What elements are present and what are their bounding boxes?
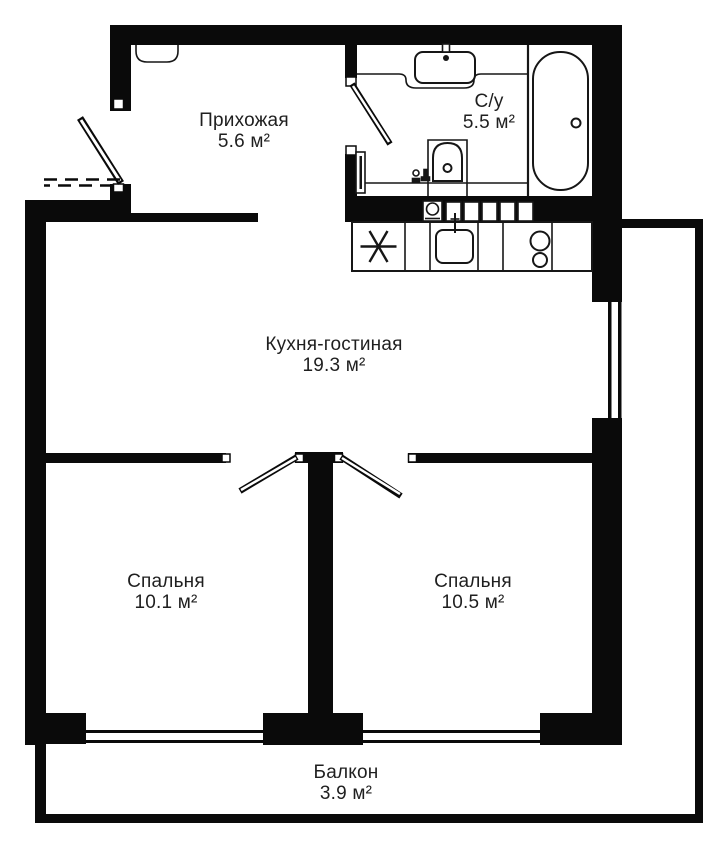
room-name: Прихожая (199, 110, 289, 131)
kitchen-counter (352, 213, 592, 271)
bedroom-left-door (240, 457, 297, 491)
room-area: 19.3 м² (265, 355, 402, 376)
towel-rail (356, 152, 365, 193)
room-area: 3.9 м² (314, 783, 379, 804)
hallway-closet (136, 45, 178, 62)
room-label-bathroom: С/у 5.5 м² (463, 91, 515, 133)
room-label-bedroom-right: Спальня 10.5 м² (434, 571, 512, 613)
bathroom-door (352, 84, 390, 144)
room-name: С/у (463, 91, 515, 112)
washing-machine-icon (423, 201, 442, 221)
bedroom-left-window (86, 730, 263, 743)
room-area: 5.5 м² (463, 112, 515, 133)
room-area: 5.6 м² (199, 131, 289, 152)
kitchen-window (608, 302, 622, 418)
room-name: Спальня (127, 571, 205, 592)
room-name: Балкон (314, 762, 379, 783)
floor-plan-drawing (0, 0, 728, 851)
floor-plan: Прихожая 5.6 м² С/у 5.5 м² Кухня-гостина… (0, 0, 728, 851)
room-label-hallway: Прихожая 5.6 м² (199, 110, 289, 152)
bathtub (533, 52, 588, 190)
bathroom-sink (357, 44, 527, 88)
toilet (428, 140, 467, 196)
entrance-door (44, 118, 121, 186)
room-area: 10.5 м² (434, 592, 512, 613)
bedroom-right-window (363, 730, 540, 743)
room-name: Спальня (434, 571, 512, 592)
room-label-kitchen-living: Кухня-гостиная 19.3 м² (265, 334, 402, 376)
bedroom-right-door (341, 457, 401, 496)
room-label-balcony: Балкон 3.9 м² (314, 762, 379, 804)
water-valves-icon (413, 170, 430, 183)
room-label-bedroom-left: Спальня 10.1 м² (127, 571, 205, 613)
room-name: Кухня-гостиная (265, 334, 402, 355)
room-area: 10.1 м² (127, 592, 205, 613)
